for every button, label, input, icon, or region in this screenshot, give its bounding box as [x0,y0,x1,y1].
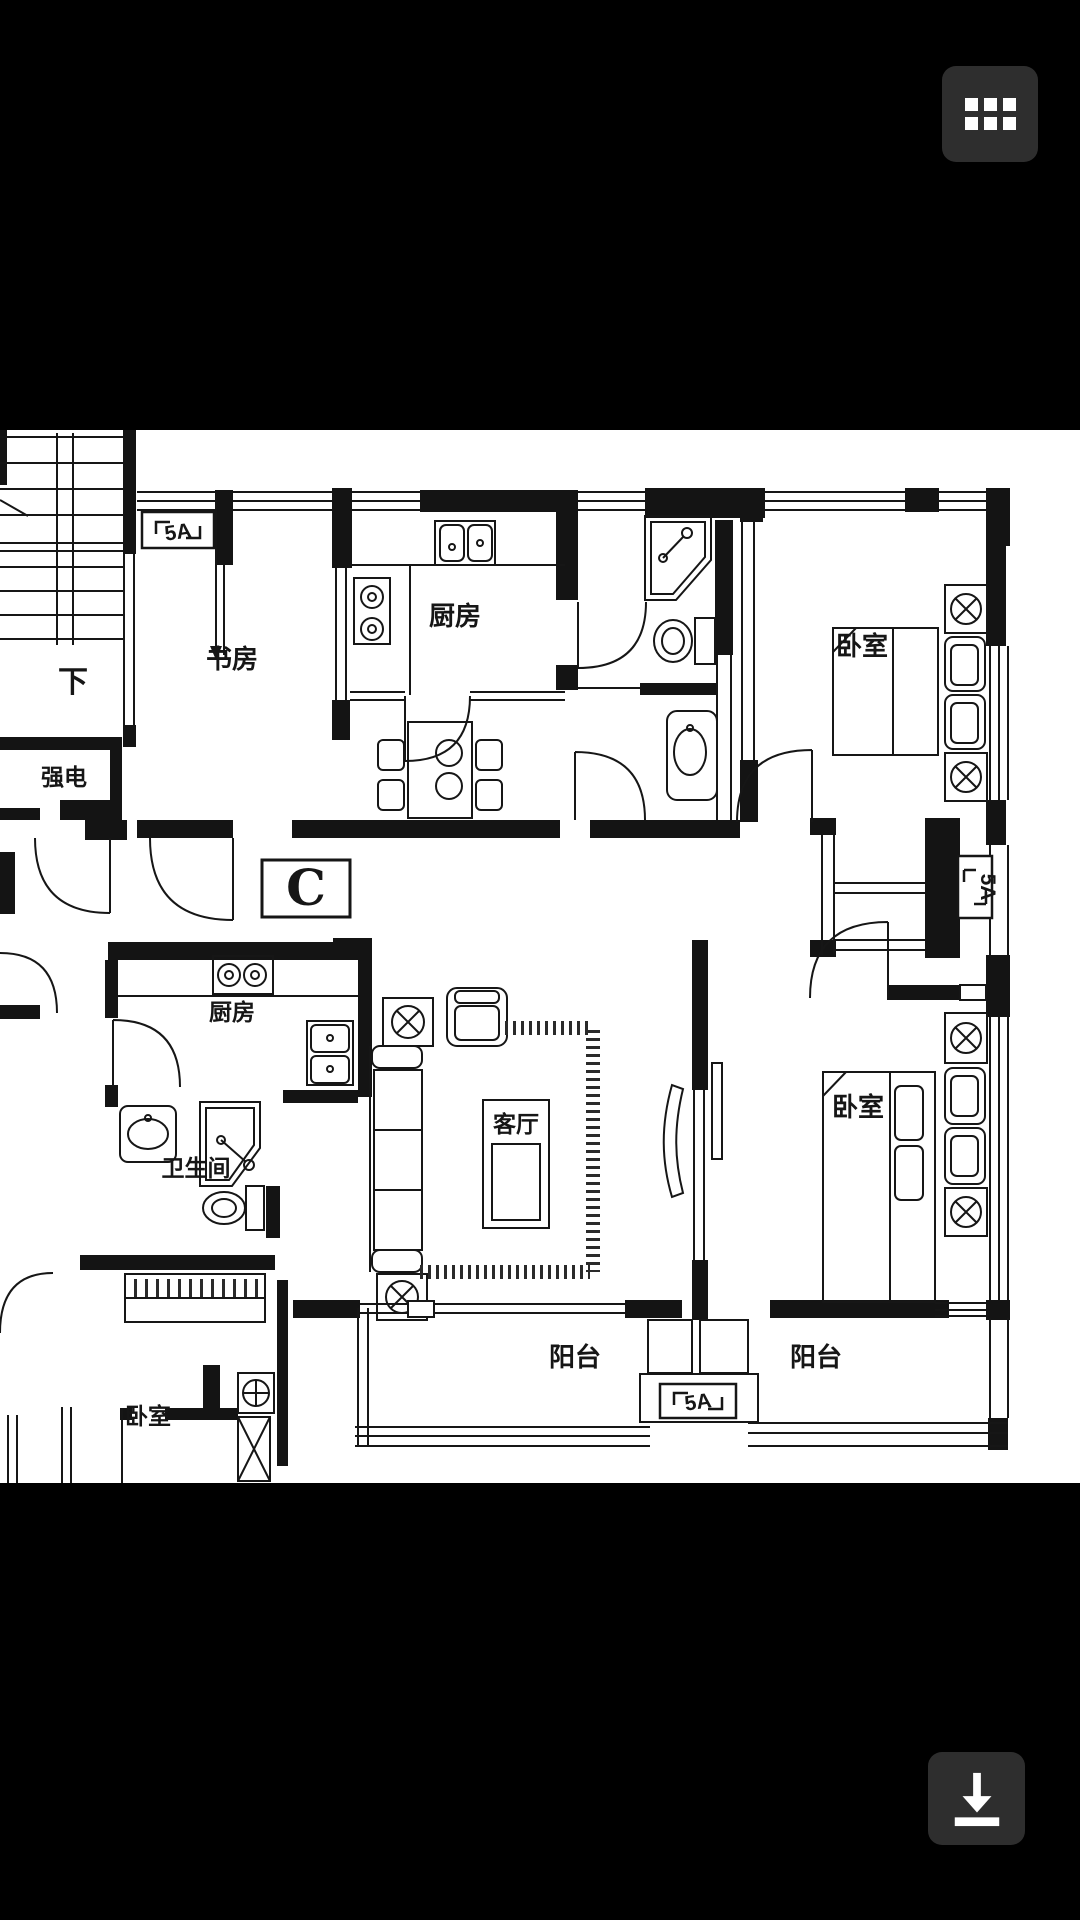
ac-marker-right-label: 5A [976,874,999,901]
grid-icon [965,98,1016,130]
download-button[interactable] [928,1752,1025,1845]
room-label-living-room: 客厅 [493,1111,539,1137]
room-label-bathroom: 卫生间 [162,1155,231,1181]
room-label-balcony-left: 阳台 [549,1342,601,1372]
room-label-kitchen-upper: 厨房 [429,601,481,631]
room-label-stairs-down: 下 [58,666,88,699]
ac-marker-top-label: 5A [163,519,193,546]
room-label-electrical: 强电 [41,764,87,790]
floorplan-svg: 下 书房 厨房 卧室 强电 C 厨房 客厅 卫生间 卧室 阳台 阳台 卧室 5A… [0,430,1080,1483]
room-label-bedroom-bottom-left: 卧室 [125,1403,171,1429]
room-label-bedroom-bottom-right: 卧室 [832,1092,884,1122]
grid-menu-button[interactable] [942,66,1038,162]
room-label-study: 书房 [206,644,258,674]
download-icon [948,1769,1006,1829]
room-label-balcony-right: 阳台 [790,1342,842,1372]
floorplan-image[interactable]: 下 书房 厨房 卧室 强电 C 厨房 客厅 卫生间 卧室 阳台 阳台 卧室 5A… [0,430,1080,1483]
room-label-kitchen-lower: 厨房 [209,999,255,1025]
walls [0,430,1010,1466]
room-label-bedroom-top-right: 卧室 [836,631,888,661]
ac-marker-bottom-label: 5A [683,1389,713,1416]
image-viewer-screen: 下 书房 厨房 卧室 强电 C 厨房 客厅 卫生间 卧室 阳台 阳台 卧室 5A… [0,0,1080,1920]
unit-label: C [286,858,326,917]
